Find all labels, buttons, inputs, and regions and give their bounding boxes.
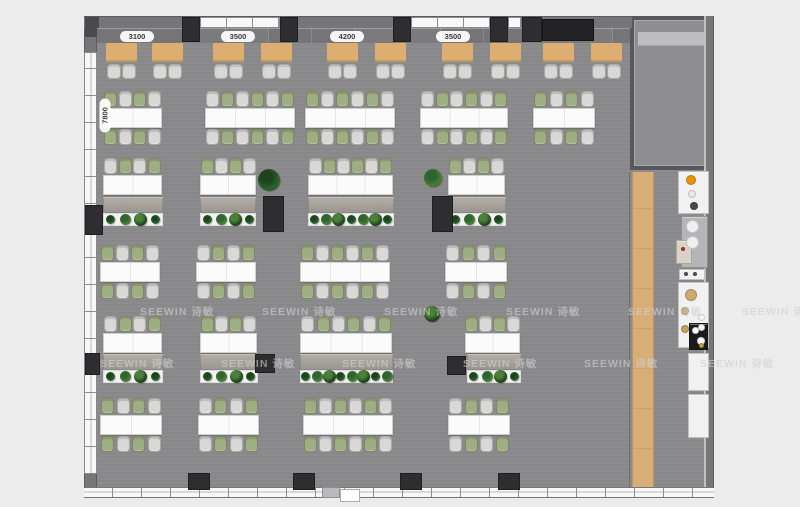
potted-plant bbox=[358, 214, 369, 225]
office-chair bbox=[306, 129, 319, 145]
desk-cluster-worktop bbox=[308, 175, 393, 195]
booth-chair bbox=[544, 64, 558, 79]
office-chair bbox=[421, 91, 434, 107]
office-chair bbox=[230, 436, 243, 452]
office-chair bbox=[534, 91, 547, 107]
office-chair bbox=[379, 158, 392, 174]
potted-plant bbox=[203, 215, 212, 224]
office-chair bbox=[229, 316, 242, 332]
office-chair bbox=[148, 129, 161, 145]
watermark-text: SEEWIN 诗敏 bbox=[584, 356, 658, 371]
office-chair bbox=[116, 283, 129, 299]
office-chair bbox=[148, 91, 161, 107]
office-chair bbox=[450, 129, 463, 145]
structural-column bbox=[263, 196, 284, 232]
booth-table bbox=[591, 43, 622, 62]
storage-cabinet-row bbox=[103, 197, 163, 212]
structural-column bbox=[188, 473, 210, 490]
desk-cluster-worktop bbox=[300, 262, 390, 282]
potted-plant bbox=[469, 372, 478, 381]
office-chair bbox=[381, 91, 394, 107]
office-chair bbox=[334, 398, 347, 414]
office-chair bbox=[212, 283, 225, 299]
wall-media-box bbox=[542, 19, 594, 41]
office-chair bbox=[148, 398, 161, 414]
booth-chair bbox=[107, 64, 121, 79]
desk-cluster-worktop bbox=[465, 333, 520, 353]
dispenser-ring bbox=[688, 190, 696, 198]
office-chair bbox=[243, 158, 256, 174]
office-chair bbox=[266, 91, 279, 107]
top-wall-window bbox=[200, 17, 280, 28]
sink-bowl-tan bbox=[685, 289, 697, 301]
office-chair bbox=[365, 158, 378, 174]
dimension-label: 3500 bbox=[221, 31, 255, 42]
coffee-cup-white bbox=[686, 236, 699, 249]
office-chair bbox=[319, 436, 332, 452]
office-chair bbox=[148, 436, 161, 452]
watermark-text: SEEWIN 诗敏 bbox=[342, 356, 416, 371]
potted-plant bbox=[369, 213, 382, 226]
office-chair bbox=[477, 245, 490, 261]
potted-plant bbox=[216, 371, 227, 382]
potted-plant bbox=[357, 370, 370, 383]
office-chair bbox=[201, 158, 214, 174]
office-chair bbox=[119, 91, 132, 107]
office-chair bbox=[351, 91, 364, 107]
potted-plant bbox=[301, 372, 310, 381]
office-chair bbox=[379, 398, 392, 414]
office-chair bbox=[379, 436, 392, 452]
desk-cluster-worktop bbox=[205, 108, 295, 128]
office-chair bbox=[221, 129, 234, 145]
office-chair bbox=[146, 283, 159, 299]
booth-table bbox=[261, 43, 292, 62]
watermark-text: SEEWIN 诗敏 bbox=[628, 304, 702, 319]
office-chair bbox=[146, 245, 159, 261]
office-chair bbox=[251, 129, 264, 145]
structural-column bbox=[432, 196, 453, 232]
office-chair bbox=[351, 158, 364, 174]
office-chair bbox=[206, 91, 219, 107]
office-chair bbox=[334, 436, 347, 452]
office-chair bbox=[331, 245, 344, 261]
office-chair bbox=[132, 398, 145, 414]
office-chair bbox=[493, 245, 506, 261]
office-chair bbox=[361, 283, 374, 299]
office-chair bbox=[534, 129, 547, 145]
office-chair bbox=[346, 283, 359, 299]
dimension-label: 3100 bbox=[120, 31, 154, 42]
desk-cluster-worktop bbox=[196, 262, 256, 282]
office-chair bbox=[364, 436, 377, 452]
office-chair bbox=[245, 436, 258, 452]
office-chair bbox=[331, 283, 344, 299]
office-chair bbox=[306, 91, 319, 107]
office-chair bbox=[480, 398, 493, 414]
office-chair bbox=[131, 245, 144, 261]
watermark-text: SEEWIN 诗敏 bbox=[700, 356, 774, 371]
office-chair bbox=[104, 158, 117, 174]
potted-plant bbox=[120, 371, 131, 382]
desk-cluster-worktop bbox=[300, 333, 392, 353]
desk-cluster-worktop bbox=[448, 175, 505, 195]
potted-plant bbox=[216, 214, 227, 225]
booth-chair bbox=[376, 64, 390, 79]
potted-plant bbox=[246, 372, 255, 381]
potted-plant bbox=[464, 214, 475, 225]
office-chair bbox=[319, 398, 332, 414]
floorplan-canvas: 31003500420035007800SEEWIN 诗敏SEEWIN 诗敏SE… bbox=[0, 0, 800, 507]
wall-cabinet bbox=[688, 394, 709, 438]
potted-plant bbox=[510, 372, 519, 381]
office-chair bbox=[494, 91, 507, 107]
potted-plant bbox=[106, 215, 115, 224]
watermark-text: SEEWIN 诗敏 bbox=[140, 304, 214, 319]
top-wall-window bbox=[411, 17, 490, 28]
office-chair bbox=[301, 283, 314, 299]
office-chair bbox=[197, 283, 210, 299]
office-chair bbox=[117, 436, 130, 452]
booth-chair bbox=[458, 64, 472, 79]
potted-plant bbox=[230, 370, 243, 383]
office-chair bbox=[230, 398, 243, 414]
office-chair bbox=[301, 245, 314, 261]
booth-chair bbox=[328, 64, 342, 79]
office-chair bbox=[465, 398, 478, 414]
potted-plant bbox=[120, 214, 131, 225]
office-chair bbox=[199, 436, 212, 452]
office-chair bbox=[101, 398, 114, 414]
booth-chair bbox=[343, 64, 357, 79]
desk-cluster-worktop bbox=[103, 333, 162, 353]
office-chair bbox=[465, 436, 478, 452]
watermark-text: SEEWIN 诗敏 bbox=[262, 304, 336, 319]
coffee-cup-white bbox=[686, 220, 699, 233]
office-chair bbox=[351, 129, 364, 145]
entry-door-opening bbox=[340, 489, 360, 502]
booth-chair bbox=[214, 64, 228, 79]
potted-plant bbox=[151, 215, 160, 224]
potted-plant bbox=[134, 370, 147, 383]
structural-column bbox=[280, 17, 298, 42]
storage-cabinet-row bbox=[200, 197, 256, 212]
potted-plant bbox=[382, 371, 393, 382]
open-office-floor bbox=[96, 28, 705, 488]
top-wall-window bbox=[508, 17, 521, 28]
office-chair bbox=[133, 91, 146, 107]
potted-plant bbox=[336, 372, 345, 381]
booth-table bbox=[106, 43, 137, 62]
structural-column bbox=[85, 205, 103, 235]
booth-chair bbox=[607, 64, 621, 79]
office-chair bbox=[376, 245, 389, 261]
dispenser-burner-orange bbox=[686, 175, 696, 185]
potted-plant bbox=[383, 215, 392, 224]
office-chair bbox=[116, 245, 129, 261]
office-chair bbox=[436, 91, 449, 107]
office-chair bbox=[101, 436, 114, 452]
office-chair bbox=[304, 436, 317, 452]
counter-item-yellow bbox=[699, 343, 704, 348]
dimension-label: 4200 bbox=[330, 31, 364, 42]
floor-transition-line bbox=[629, 172, 630, 488]
office-chair bbox=[381, 129, 394, 145]
office-chair bbox=[148, 158, 161, 174]
office-chair bbox=[436, 129, 449, 145]
bottom-wall-window-band bbox=[84, 487, 714, 498]
office-chair bbox=[227, 283, 240, 299]
office-chair bbox=[496, 398, 509, 414]
office-chair bbox=[309, 158, 322, 174]
desk-cluster-worktop bbox=[103, 108, 162, 128]
office-chair bbox=[119, 316, 132, 332]
dispenser-tap-dark bbox=[690, 202, 698, 210]
potted-plant bbox=[203, 372, 212, 381]
office-chair bbox=[281, 91, 294, 107]
office-chair bbox=[215, 158, 228, 174]
office-chair bbox=[477, 158, 490, 174]
office-chair bbox=[214, 398, 227, 414]
office-chair bbox=[465, 316, 478, 332]
desk-cluster-worktop bbox=[445, 262, 507, 282]
shelf-knob bbox=[684, 272, 688, 276]
office-chair bbox=[206, 129, 219, 145]
potted-plant bbox=[310, 215, 319, 224]
desk-cluster-worktop bbox=[448, 415, 510, 435]
booth-chair bbox=[277, 64, 291, 79]
left-wall-window bbox=[84, 52, 97, 474]
watermark-text: SEEWIN 诗敏 bbox=[742, 304, 800, 319]
office-chair bbox=[236, 129, 249, 145]
meeting-room-whiteboard bbox=[638, 32, 704, 46]
office-chair bbox=[266, 129, 279, 145]
potted-plant bbox=[106, 372, 115, 381]
structural-column bbox=[293, 473, 315, 490]
office-chair bbox=[336, 91, 349, 107]
office-chair bbox=[132, 436, 145, 452]
desk-cluster-worktop bbox=[103, 175, 162, 195]
storage-cabinet-row bbox=[448, 197, 506, 212]
structural-column bbox=[498, 473, 520, 490]
office-chair bbox=[494, 129, 507, 145]
office-chair bbox=[477, 283, 490, 299]
office-chair bbox=[462, 245, 475, 261]
potted-plant bbox=[482, 371, 493, 382]
potted-plant bbox=[347, 215, 356, 224]
dimension-label-vertical: 7800 bbox=[100, 99, 111, 133]
office-chair bbox=[133, 129, 146, 145]
office-chair bbox=[465, 91, 478, 107]
office-chair bbox=[446, 245, 459, 261]
booth-chair bbox=[153, 64, 167, 79]
watermark-text: SEEWIN 诗敏 bbox=[463, 356, 537, 371]
potted-plant bbox=[494, 370, 507, 383]
office-chair bbox=[581, 91, 594, 107]
desk-cluster-worktop bbox=[100, 262, 160, 282]
office-chair bbox=[480, 129, 493, 145]
office-chair bbox=[221, 91, 234, 107]
office-chair bbox=[236, 91, 249, 107]
office-chair bbox=[199, 398, 212, 414]
watermark-text: SEEWIN 诗敏 bbox=[506, 304, 580, 319]
desk-cluster-worktop bbox=[100, 415, 162, 435]
desk-cluster-worktop bbox=[198, 415, 259, 435]
booth-chair bbox=[506, 64, 520, 79]
office-chair bbox=[212, 245, 225, 261]
office-chair bbox=[581, 129, 594, 145]
booth-table bbox=[213, 43, 244, 62]
potted-plant bbox=[494, 215, 503, 224]
office-chair bbox=[104, 316, 117, 332]
desk-cluster-worktop bbox=[200, 175, 256, 195]
structural-column bbox=[522, 17, 542, 42]
desk-cluster-worktop bbox=[303, 415, 393, 435]
booth-chair bbox=[559, 64, 573, 79]
office-chair bbox=[229, 158, 242, 174]
structural-column bbox=[490, 17, 508, 42]
office-chair bbox=[101, 283, 114, 299]
storage-cabinet-row bbox=[308, 197, 394, 212]
desk-cluster-worktop bbox=[305, 108, 395, 128]
booth-chair bbox=[443, 64, 457, 79]
office-chair bbox=[323, 158, 336, 174]
office-chair bbox=[376, 283, 389, 299]
desk-cluster-worktop bbox=[533, 108, 595, 128]
office-chair bbox=[366, 91, 379, 107]
shelf-knob bbox=[693, 272, 697, 276]
booth-chair bbox=[262, 64, 276, 79]
potted-plant bbox=[312, 371, 323, 382]
watermark-text: SEEWIN 诗敏 bbox=[100, 356, 174, 371]
office-chair bbox=[421, 129, 434, 145]
office-chair bbox=[565, 91, 578, 107]
potted-plant bbox=[229, 213, 242, 226]
counter-item-tan bbox=[681, 325, 689, 333]
office-chair bbox=[493, 316, 506, 332]
potted-plant bbox=[258, 169, 280, 191]
structural-column bbox=[393, 17, 411, 42]
office-chair bbox=[449, 398, 462, 414]
office-chair bbox=[227, 245, 240, 261]
office-chair bbox=[493, 283, 506, 299]
office-chair bbox=[363, 316, 376, 332]
burner-white bbox=[692, 327, 699, 334]
booth-table bbox=[543, 43, 574, 62]
office-chair bbox=[304, 398, 317, 414]
office-chair bbox=[491, 158, 504, 174]
booth-table bbox=[442, 43, 473, 62]
office-chair bbox=[197, 245, 210, 261]
office-chair bbox=[550, 91, 563, 107]
office-chair bbox=[119, 129, 132, 145]
office-chair bbox=[465, 129, 478, 145]
office-chair bbox=[321, 129, 334, 145]
office-chair bbox=[243, 316, 256, 332]
office-chair bbox=[361, 245, 374, 261]
office-chair bbox=[446, 283, 459, 299]
potted-plant bbox=[134, 213, 147, 226]
office-chair bbox=[449, 436, 462, 452]
machine-red-dot bbox=[681, 247, 685, 251]
booth-chair bbox=[592, 64, 606, 79]
potted-plant bbox=[332, 213, 345, 226]
office-chair bbox=[449, 158, 462, 174]
potted-plant bbox=[478, 213, 491, 226]
office-chair bbox=[349, 398, 362, 414]
office-chair bbox=[117, 398, 130, 414]
office-chair bbox=[336, 129, 349, 145]
potted-plant bbox=[371, 372, 380, 381]
office-chair bbox=[251, 91, 264, 107]
booth-table bbox=[490, 43, 521, 62]
booth-chair bbox=[391, 64, 405, 79]
office-chair bbox=[215, 316, 228, 332]
office-chair bbox=[463, 158, 476, 174]
office-chair bbox=[480, 436, 493, 452]
office-chair bbox=[321, 91, 334, 107]
booth-table bbox=[152, 43, 183, 62]
appliance-shelf bbox=[679, 269, 705, 280]
office-chair bbox=[133, 158, 146, 174]
office-chair bbox=[346, 245, 359, 261]
potted-plant bbox=[347, 371, 358, 382]
office-chair bbox=[131, 283, 144, 299]
booth-chair bbox=[229, 64, 243, 79]
office-chair bbox=[245, 398, 258, 414]
office-chair bbox=[281, 129, 294, 145]
office-chair bbox=[214, 436, 227, 452]
office-chair bbox=[366, 129, 379, 145]
potted-plant bbox=[245, 215, 254, 224]
office-chair bbox=[450, 91, 463, 107]
office-chair bbox=[119, 158, 132, 174]
booth-chair bbox=[122, 64, 136, 79]
watermark-text: SEEWIN 诗敏 bbox=[221, 356, 295, 371]
potted-plant bbox=[321, 214, 332, 225]
office-chair bbox=[316, 245, 329, 261]
wood-walkway-floor bbox=[632, 172, 654, 488]
office-chair bbox=[462, 283, 475, 299]
potted-plant bbox=[151, 372, 160, 381]
entry-door-leaf bbox=[322, 487, 340, 498]
dimension-label: 3500 bbox=[436, 31, 470, 42]
booth-table bbox=[375, 43, 406, 62]
office-chair bbox=[479, 316, 492, 332]
office-chair bbox=[349, 436, 362, 452]
booth-table bbox=[327, 43, 358, 62]
desk-cluster-worktop bbox=[420, 108, 508, 128]
structural-column bbox=[182, 17, 200, 42]
potted-plant bbox=[323, 370, 336, 383]
office-chair bbox=[496, 436, 509, 452]
structural-column bbox=[400, 473, 422, 490]
structural-column bbox=[85, 353, 100, 375]
booth-chair bbox=[168, 64, 182, 79]
booth-chair bbox=[491, 64, 505, 79]
office-chair bbox=[316, 283, 329, 299]
potted-plant bbox=[424, 169, 442, 187]
office-chair bbox=[242, 245, 255, 261]
office-chair bbox=[364, 398, 377, 414]
office-chair bbox=[550, 129, 563, 145]
office-chair bbox=[565, 129, 578, 145]
office-chair bbox=[242, 283, 255, 299]
office-chair bbox=[480, 91, 493, 107]
desk-cluster-worktop bbox=[200, 333, 257, 353]
counter-plate bbox=[698, 324, 705, 331]
office-chair bbox=[347, 316, 360, 332]
